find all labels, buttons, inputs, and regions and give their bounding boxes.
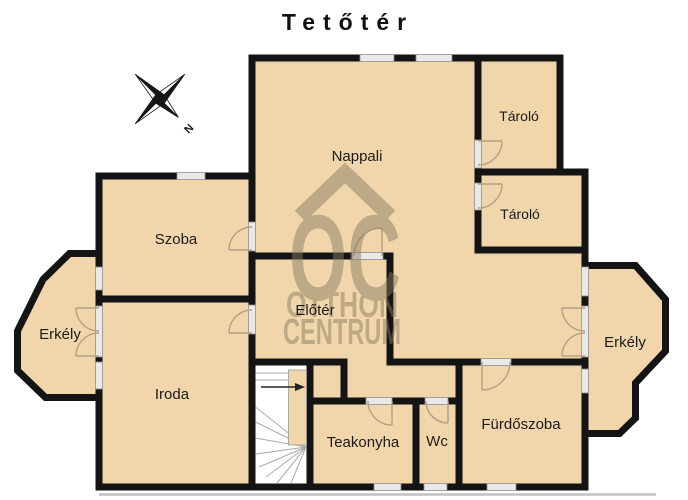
compass-north-label: N (181, 121, 195, 135)
room-label-erkely-left: Erkély (39, 326, 81, 343)
window-iroda-balcony (96, 362, 103, 389)
sill-wc-door (425, 398, 448, 405)
sill-teakonyha-door (366, 398, 392, 405)
window-nappali-top-1 (360, 55, 394, 62)
sill-tarolo-lower-door (475, 183, 482, 210)
page-title: Tetőtér (282, 9, 414, 35)
room-label-szoba: Szoba (155, 231, 198, 248)
window-wc-bottom (424, 484, 447, 491)
room-label-teakonyha: Teakonyha (327, 434, 400, 451)
room-label-nappali: Nappali (332, 148, 383, 165)
floorplan-page: Tetőtér (0, 0, 688, 500)
watermark: OC OTTHON CENTRUM (283, 173, 401, 352)
room-label-eloter: Előtér (295, 302, 334, 319)
room-label-tarolo-upper: Tároló (499, 108, 539, 124)
room-label-tarolo-lower: Tároló (500, 206, 540, 222)
room-label-iroda: Iroda (155, 386, 190, 403)
room-label-furdoszoba: Fürdőszoba (481, 416, 561, 433)
sill-furdoszoba-door (481, 359, 511, 366)
window-nappali-top-2 (416, 55, 452, 62)
window-right-upper (582, 267, 589, 296)
room-label-wc: Wc (426, 433, 448, 450)
floorplan-svg: Tetőtér (0, 0, 688, 500)
window-szoba-top (177, 173, 205, 180)
room-label-erkely-right: Erkély (604, 334, 646, 351)
window-teakonyha-bottom (374, 484, 401, 491)
compass-icon: N (135, 74, 195, 135)
window-szoba-balcony (96, 267, 103, 290)
window-furdoszoba-balcony (582, 369, 589, 393)
sill-tarolo-upper-door (475, 140, 482, 168)
window-furdoszoba-bottom (487, 484, 516, 491)
stair-landing (289, 370, 307, 445)
